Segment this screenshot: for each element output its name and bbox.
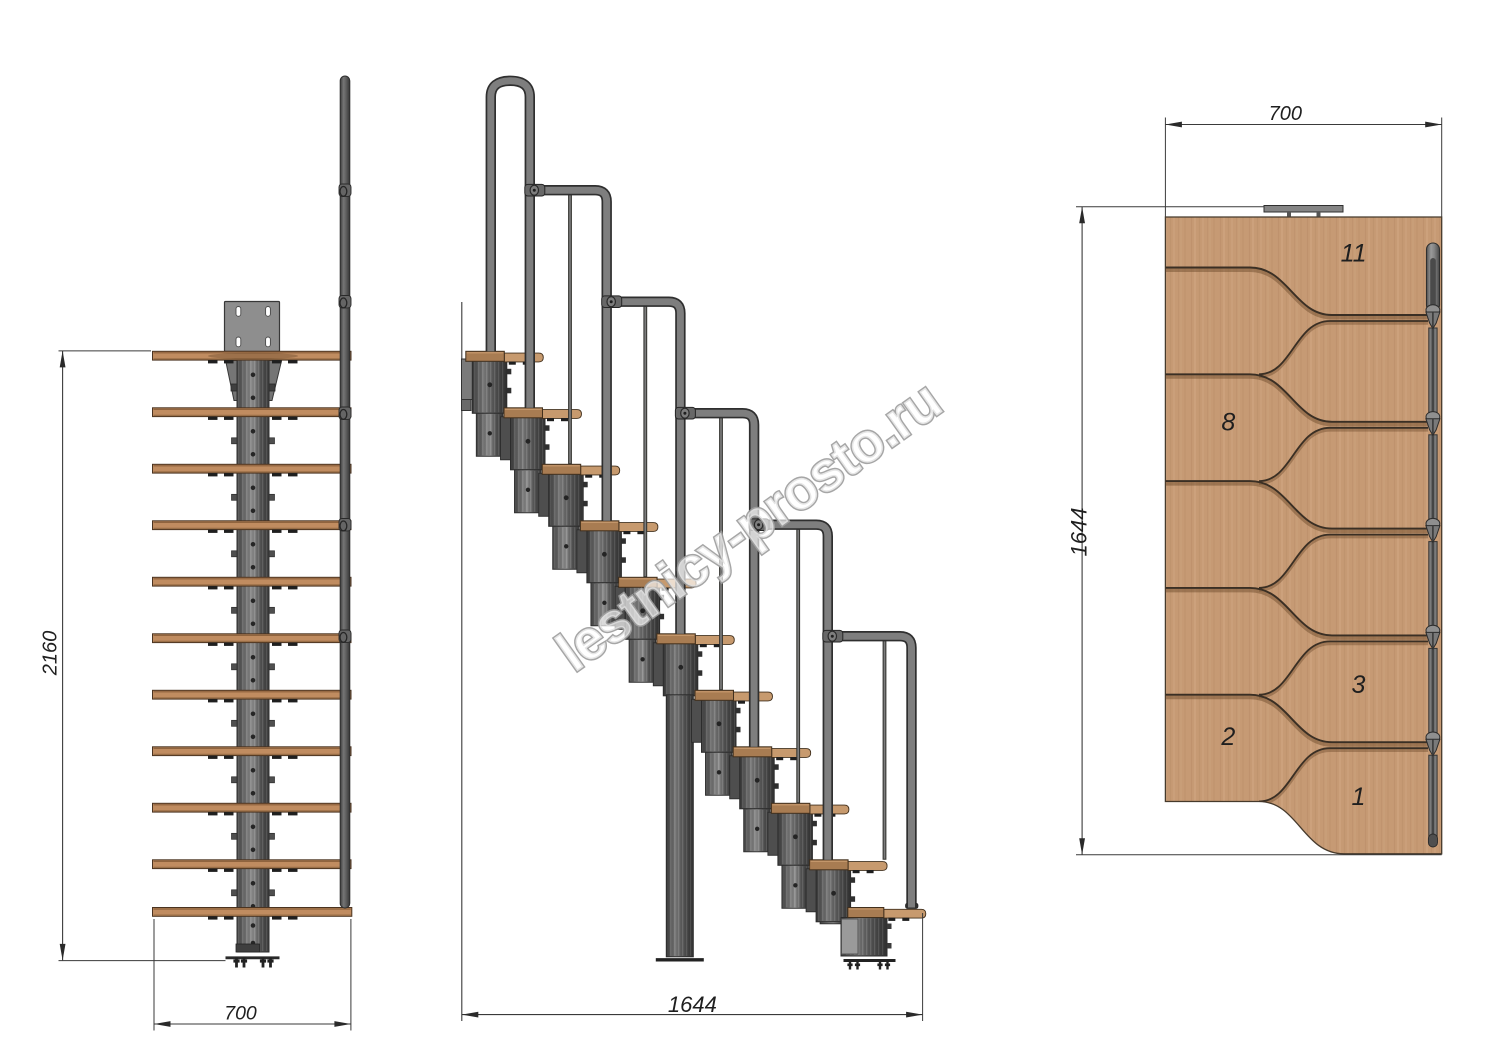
svg-text:2: 2 <box>1220 723 1235 751</box>
svg-text:11: 11 <box>1341 240 1367 268</box>
svg-text:3: 3 <box>1352 671 1366 699</box>
svg-text:700: 700 <box>1269 103 1302 125</box>
svg-text:1: 1 <box>1352 783 1366 811</box>
svg-text:2160: 2160 <box>40 631 62 677</box>
svg-text:1644: 1644 <box>668 992 717 1017</box>
svg-text:700: 700 <box>224 1003 257 1025</box>
svg-text:8: 8 <box>1221 409 1235 437</box>
svg-text:1644: 1644 <box>1067 508 1092 557</box>
